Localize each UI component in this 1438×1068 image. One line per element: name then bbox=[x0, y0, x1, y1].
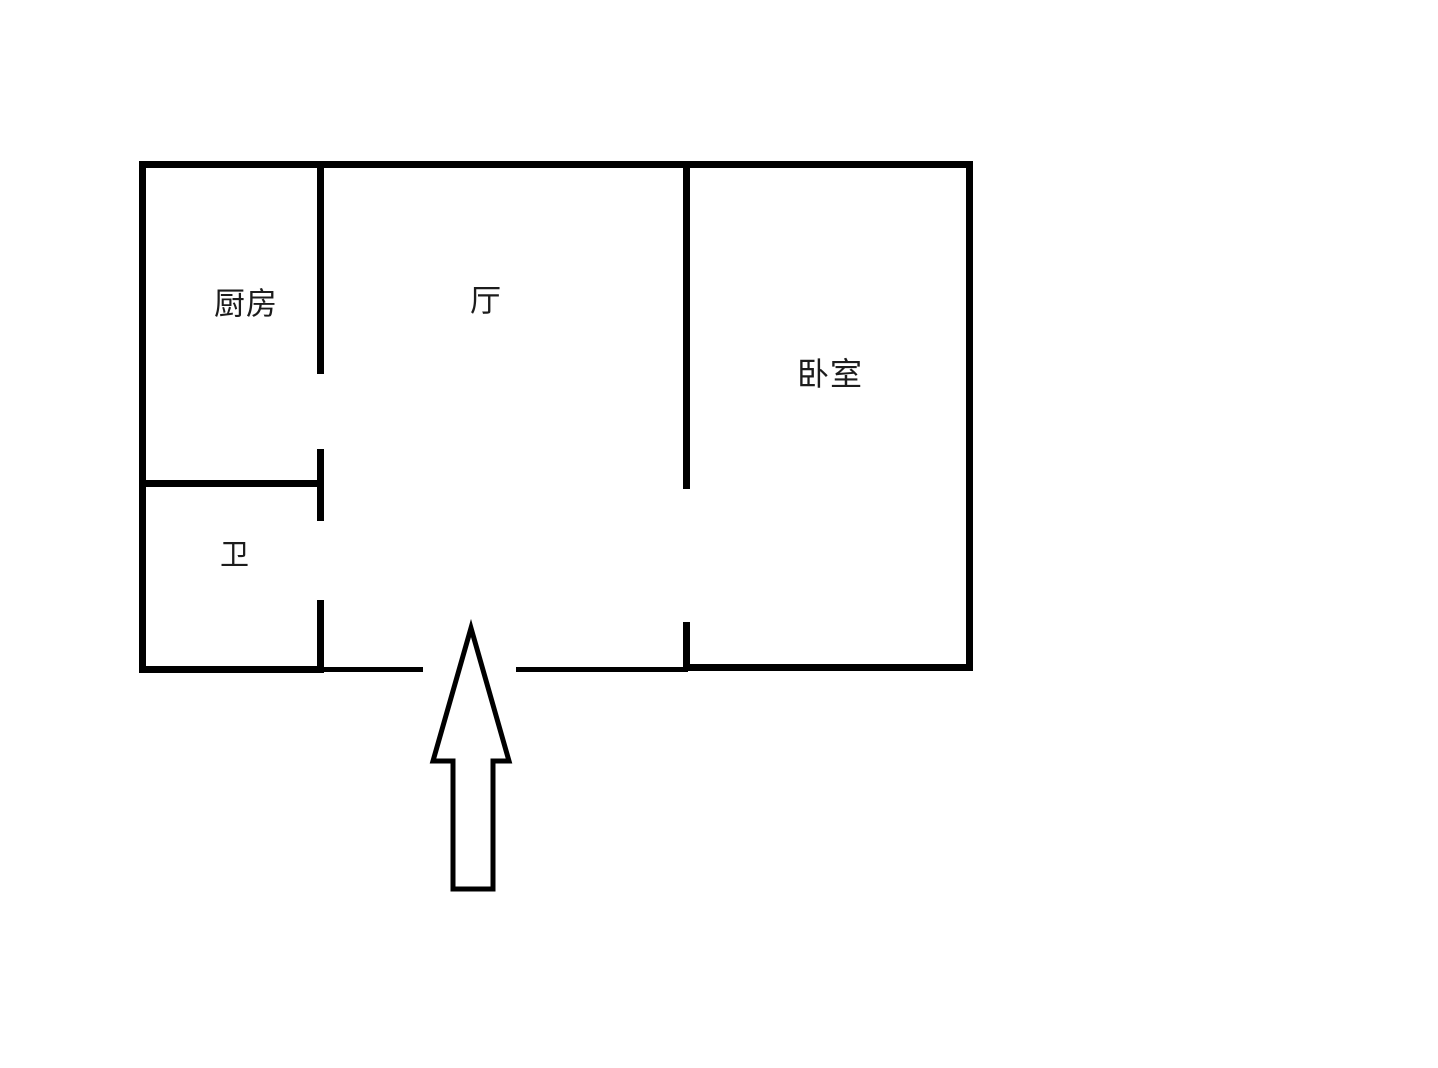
wall-kitchen-hall-upper bbox=[317, 161, 324, 374]
bathroom-label: 卫 bbox=[220, 542, 250, 571]
floor-plan: 厨房 厅 卧室 卫 bbox=[0, 0, 1438, 1068]
wall-kitchen-bathroom bbox=[139, 480, 324, 487]
wall-bottom-bedroom bbox=[683, 664, 973, 671]
wall-hall-bedroom-upper bbox=[683, 161, 690, 489]
wall-kitchen-hall-lower bbox=[317, 600, 324, 673]
bedroom-label: 卧室 bbox=[797, 358, 863, 390]
up-arrow-icon bbox=[425, 619, 517, 897]
wall-left bbox=[139, 161, 146, 673]
hall-label: 厅 bbox=[470, 286, 502, 317]
wall-bottom-hall-right bbox=[516, 667, 688, 672]
entrance-arrow bbox=[425, 619, 517, 897]
wall-top bbox=[139, 161, 973, 168]
wall-bottom-bathroom bbox=[139, 666, 324, 673]
wall-hall-bedroom-lower bbox=[683, 622, 690, 671]
wall-right bbox=[966, 161, 973, 671]
wall-bottom-hall-left bbox=[322, 667, 423, 672]
kitchen-label: 厨房 bbox=[214, 289, 278, 320]
